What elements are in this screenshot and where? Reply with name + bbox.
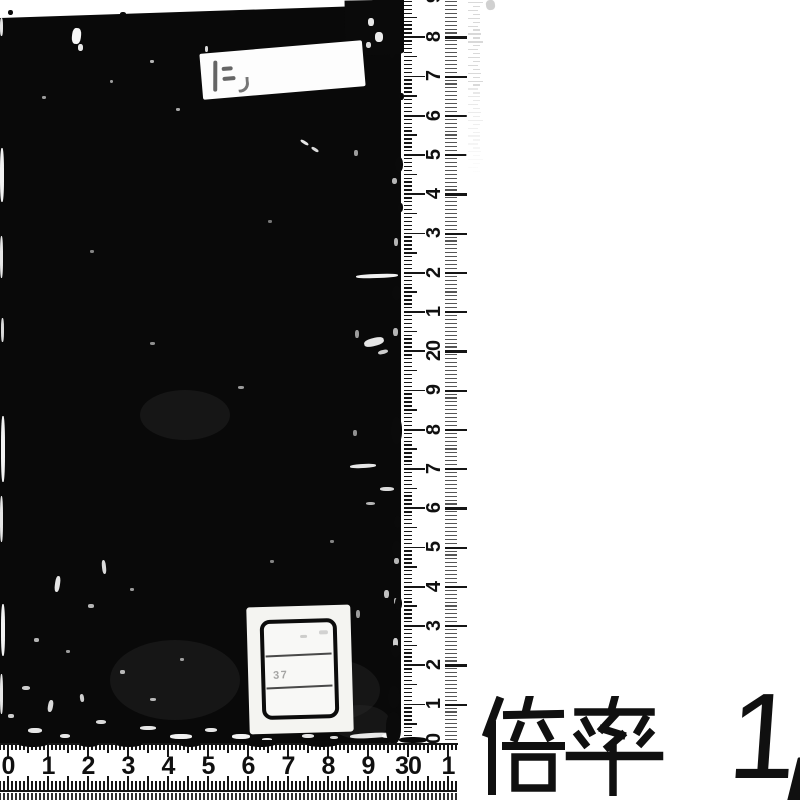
- hruler-number: 30: [391, 754, 425, 778]
- vruler-left-tick: [404, 248, 412, 249]
- wear-mark: [268, 220, 272, 223]
- vruler-number: 9: [421, 0, 447, 11]
- hruler-bottom-tick: [143, 781, 145, 790]
- top-edge-notch: [145, 8, 158, 12]
- hruler-bottom-tick: [411, 781, 413, 790]
- vruler-left-tick: [404, 354, 412, 355]
- vruler-left-tick: [404, 527, 417, 528]
- scan-viewport: 37 9876543212098765432110 0123456789301: [0, 0, 800, 800]
- hruler-bottom-tick: [55, 781, 57, 790]
- hruler-top-tick: [387, 745, 389, 753]
- wear-mark: [0, 496, 3, 542]
- wear-mark: [88, 604, 94, 608]
- vruler-left-tick: [404, 523, 412, 524]
- vruler-left-tick: [404, 692, 412, 693]
- hruler-subrow-tick: [259, 793, 261, 800]
- hruler-top-tick: [355, 745, 357, 750]
- hruler-subrow-tick: [335, 793, 337, 800]
- hruler-top-tick: [291, 745, 293, 750]
- vruler-right-dash: [445, 335, 457, 336]
- hruler-subrow-tick: [71, 793, 73, 800]
- hruler-bottom-tick: [147, 776, 149, 790]
- vruler-left-tick: [404, 688, 412, 689]
- vruler-left-tick: [404, 60, 412, 61]
- hruler-number: 9: [351, 754, 385, 778]
- book-edge-bump: [180, 742, 200, 747]
- wear-mark: [238, 386, 244, 389]
- top-edge-notch: [26, 8, 42, 13]
- vruler-number: 4: [421, 574, 447, 600]
- hruler-bottom-tick: [303, 781, 305, 790]
- hruler-bottom-tick: [115, 781, 117, 790]
- vruler-right-dash: [445, 445, 457, 446]
- hruler-subrow-tick: [11, 793, 13, 800]
- vruler-left-tick: [404, 68, 412, 69]
- hruler-bottom-tick: [399, 781, 401, 790]
- wear-mark: [130, 588, 134, 591]
- vruler-left-tick: [404, 256, 412, 257]
- hruler-bottom-tick: [275, 781, 277, 790]
- hruler-bottom-tick: [347, 776, 349, 790]
- hruler-top-tick: [411, 745, 413, 750]
- hruler-subrow-tick: [435, 793, 437, 800]
- vruler-right-dash: [445, 570, 457, 571]
- wear-mark: [240, 86, 243, 89]
- vruler-right-dash: [445, 609, 457, 610]
- hruler-subrow-tick: [103, 793, 105, 800]
- vruler-right-dash: [445, 727, 457, 728]
- hruler-top-tick: [51, 745, 53, 750]
- wear-mark: [205, 46, 208, 52]
- hruler-top-tick: [343, 745, 345, 750]
- vruler-left-tick: [404, 95, 417, 96]
- wear-mark: [384, 590, 389, 598]
- hruler-bottom-tick: [403, 781, 405, 790]
- vruler-left-tick: [404, 566, 417, 567]
- wear-mark: [28, 728, 42, 733]
- hruler-bottom-tick: [267, 776, 269, 790]
- vruler-right-dash: [445, 413, 457, 414]
- hruler-bottom-tick: [75, 781, 77, 790]
- wear-mark: [1, 604, 5, 656]
- hruler-top-tick: [199, 745, 201, 750]
- hruler-subrow-tick: [427, 793, 429, 800]
- hruler-subrow-tick: [303, 793, 305, 800]
- vruler-left-tick: [404, 162, 412, 163]
- hruler-subrow-tick: [135, 793, 137, 800]
- hruler-subrow-tick: [191, 793, 193, 800]
- hruler-subrow-tick: [115, 793, 117, 800]
- vruler-right-dash: [445, 664, 467, 666]
- hruler-top-tick: [359, 745, 361, 750]
- hruler-top-tick: [223, 745, 225, 750]
- hruler-bottom-tick: [339, 781, 341, 790]
- hruler-bottom-tick: [179, 781, 181, 790]
- vruler-number: 6: [421, 103, 447, 129]
- vruler-left-tick: [404, 421, 412, 422]
- hruler-bottom-tick: [59, 781, 61, 790]
- vruler-number: 7: [421, 456, 447, 482]
- hruler-subrow-tick: [235, 793, 237, 800]
- hruler-bottom-tick: [23, 781, 25, 790]
- vruler-left-tick: [404, 72, 412, 73]
- vruler-left-tick: [404, 221, 412, 222]
- hruler-subrow-tick: [35, 793, 37, 800]
- hruler-subrow-tick: [107, 793, 109, 800]
- wear-mark: [60, 734, 70, 738]
- hruler-top-tick: [219, 745, 221, 750]
- hruler-top-tick: [431, 745, 433, 750]
- hruler-bottom-tick: [351, 781, 353, 790]
- vruler-left-tick: [404, 366, 412, 367]
- vruler-right-dash: [445, 217, 457, 218]
- handwriting-stroke: [237, 77, 249, 93]
- hruler-subrow-tick: [123, 793, 125, 800]
- faint-mark: [319, 630, 328, 634]
- hruler-subrow-tick: [131, 793, 133, 800]
- edge-debris: [392, 286, 401, 300]
- hruler-bottom-tick: [203, 781, 205, 790]
- vruler-right-dash: [445, 170, 457, 171]
- hruler-subrow-tick: [179, 793, 181, 800]
- vruler-right-dash: [445, 21, 457, 22]
- book-edge-bump: [18, 740, 48, 747]
- hruler-subrow-tick: [91, 793, 93, 800]
- hruler-bottom-tick: [67, 776, 69, 790]
- vruler-left-tick: [404, 492, 412, 493]
- hruler-subrow-tick: [51, 793, 53, 800]
- wear-mark: [150, 60, 154, 63]
- wear-mark: [90, 250, 94, 253]
- edge-debris: [120, 12, 126, 16]
- vruler-number: 3: [421, 220, 447, 246]
- vruler-left-tick: [404, 295, 412, 296]
- wear-mark: [366, 42, 371, 48]
- hruler-top-tick: [115, 745, 117, 750]
- hruler-subrow-tick: [267, 793, 269, 800]
- vruler-number: 1: [421, 299, 447, 325]
- vruler-right-dash: [445, 645, 457, 646]
- vruler-left-tick: [404, 382, 412, 383]
- vruler-right-dash: [445, 288, 457, 289]
- vruler-left-tick: [404, 17, 417, 18]
- wear-mark: [0, 148, 4, 202]
- magnification-slash-partial: [786, 757, 800, 800]
- hruler-subrow-tick: [87, 793, 89, 800]
- vruler-left-tick: [404, 707, 412, 708]
- hruler-bottom-tick: [123, 781, 125, 790]
- hruler-bottom-tick: [227, 776, 229, 790]
- hruler-subrow-tick: [111, 793, 113, 800]
- hruler-subrow-tick: [407, 793, 409, 800]
- vruler-left-tick: [404, 284, 412, 285]
- hruler-top-tick: [143, 745, 145, 750]
- hruler-subrow-tick: [167, 793, 169, 800]
- hruler-subrow-tick: [127, 793, 129, 800]
- hruler-bottom-tick: [395, 781, 397, 790]
- hruler-subrow-tick: [147, 793, 149, 800]
- hruler-top-tick: [63, 745, 65, 750]
- hruler-subrow-tick: [331, 793, 333, 800]
- vruler-left-tick: [404, 315, 412, 316]
- hruler-subrow-tick: [231, 793, 233, 800]
- edge-debris: [388, 686, 400, 708]
- wear-mark: [78, 44, 83, 51]
- vruler-left-tick: [404, 362, 412, 363]
- hruler-bottom-tick: [119, 781, 121, 790]
- hruler-subrow-tick: [59, 793, 61, 800]
- worn-patch: [110, 640, 240, 720]
- hruler-subrow-tick: [379, 793, 381, 800]
- hruler-subrow-tick: [187, 793, 189, 800]
- hruler-subrow-tick: [443, 793, 445, 800]
- hruler-subrow-tick: [423, 793, 425, 800]
- hruler-top-tick: [243, 745, 245, 750]
- top-edge-notch: [76, 7, 94, 11]
- vruler-right-dash: [445, 507, 467, 509]
- vruler-number: 9: [421, 377, 447, 403]
- hruler-subrow-tick: [283, 793, 285, 800]
- hruler-top-tick: [215, 745, 217, 750]
- hruler-top-tick: [283, 745, 285, 750]
- hruler-top-tick: [75, 745, 77, 750]
- hruler-subrow-tick: [451, 793, 453, 800]
- vruler-right-dash: [445, 131, 457, 132]
- vruler-right-dash: [445, 523, 457, 524]
- wear-mark: [176, 108, 180, 111]
- vruler-left-tick: [404, 119, 412, 120]
- hruler-bottom-tick: [175, 781, 177, 790]
- hruler-bottom-tick: [435, 781, 437, 790]
- vruler-left-tick: [404, 299, 412, 300]
- vruler-left-tick: [404, 582, 412, 583]
- hruler-bottom-tick: [3, 781, 5, 790]
- hruler-subrow-tick: [327, 793, 329, 800]
- hruler-bottom-tick: [323, 781, 325, 790]
- wear-mark: [394, 558, 399, 564]
- vruler-right-dash: [445, 91, 457, 92]
- vruler-left-tick: [404, 28, 412, 29]
- wear-mark: [66, 650, 70, 653]
- hruler-subrow-tick: [315, 793, 317, 800]
- edge-debris: [391, 417, 402, 444]
- hruler-top-tick: [371, 745, 373, 750]
- vruler-right-dash: [445, 193, 467, 195]
- call-number-frame: 37: [260, 618, 340, 720]
- hruler-subrow-tick: [143, 793, 145, 800]
- wear-mark: [353, 430, 357, 436]
- vruler-right-dash: [445, 291, 457, 292]
- vruler-left-tick: [404, 719, 412, 720]
- vruler-left-tick: [404, 731, 412, 732]
- vruler-left-tick: [404, 601, 412, 602]
- hruler-top-tick: [279, 745, 281, 750]
- hruler-subrow-tick: [391, 793, 393, 800]
- vruler-right-dash: [445, 178, 457, 179]
- vruler-left-tick: [404, 170, 412, 171]
- hruler-bottom-tick: [423, 781, 425, 790]
- vruler-right-dash: [445, 429, 467, 431]
- hruler-bottom-tick: [63, 781, 65, 790]
- vruler-left-tick: [404, 425, 412, 426]
- vruler-right-dash: [445, 248, 457, 249]
- hruler-subrow-tick: [355, 793, 357, 800]
- hruler-top-tick: [391, 745, 393, 750]
- hruler-top-tick: [227, 745, 229, 753]
- handwriting-stroke: [222, 66, 233, 70]
- hruler-subrow-tick: [151, 793, 153, 800]
- vruler-left-tick: [404, 621, 412, 622]
- hruler-bottom-tick: [35, 781, 37, 790]
- hruler-subrow-tick: [27, 793, 29, 800]
- hruler-bottom-tick: [223, 781, 225, 790]
- vruler-left-tick: [404, 633, 412, 634]
- kanji-bairitsu-text: [482, 696, 667, 796]
- hruler-subrow-tick: [415, 793, 417, 800]
- hruler-top-tick: [147, 745, 149, 753]
- vruler-left-tick: [404, 433, 412, 434]
- vruler-right-dash: [445, 641, 457, 642]
- vruler-left-tick: [404, 40, 412, 41]
- wear-mark: [375, 32, 383, 42]
- hruler-subrow-tick: [163, 793, 165, 800]
- wear-mark: [270, 560, 274, 563]
- frame-divider: [266, 685, 332, 690]
- hruler-top-tick: [383, 745, 385, 750]
- vruler-left-tick: [404, 515, 412, 516]
- wear-mark: [368, 18, 374, 26]
- hruler-subrow-tick: [439, 793, 441, 800]
- top-edge-notch: [55, 6, 66, 13]
- hruler-subrow-tick: [419, 793, 421, 800]
- hruler-subrow-tick: [63, 793, 65, 800]
- hruler-subrow-tick: [199, 793, 201, 800]
- wear-mark: [392, 178, 397, 184]
- hruler-subrow-tick: [119, 793, 121, 800]
- hruler-subrow-tick: [215, 793, 217, 800]
- vruler-left-tick: [404, 495, 412, 496]
- hruler-subrow-tick: [295, 793, 297, 800]
- vruler-left-tick: [404, 405, 412, 406]
- vruler-left-tick: [404, 723, 417, 724]
- hruler-bottom-tick: [363, 781, 365, 790]
- edge-debris: [391, 645, 400, 657]
- vruler-left-tick: [404, 142, 412, 143]
- vruler-left-tick: [404, 519, 412, 520]
- hruler-subrow-tick: [371, 793, 373, 800]
- hruler-bottom-tick: [375, 781, 377, 790]
- vruler-left-tick: [404, 111, 412, 112]
- vruler-left-tick: [404, 598, 412, 599]
- ghost-fade: [466, 0, 514, 180]
- vruler-right-dash: [445, 13, 457, 14]
- vruler-right-dash: [445, 370, 457, 371]
- vruler-left-tick: [404, 127, 412, 128]
- hruler-bottom-tick: [291, 781, 293, 790]
- vruler-number: 8: [421, 417, 447, 443]
- vruler-left-tick: [404, 87, 412, 88]
- hruler-bottom-tick: [51, 781, 53, 790]
- hruler-number: 6: [231, 754, 265, 778]
- vruler-left-tick: [404, 684, 417, 685]
- hruler-top-tick: [455, 745, 457, 750]
- vruler-number: 3: [421, 613, 447, 639]
- vruler-left-tick: [404, 185, 412, 186]
- vruler-left-tick: [404, 64, 412, 65]
- vruler-left-tick: [404, 268, 412, 269]
- hruler-subrow-tick: [23, 793, 25, 800]
- vruler-left-tick: [404, 444, 412, 445]
- hruler-bottom-tick: [359, 781, 361, 790]
- hruler-top-tick: [303, 745, 305, 750]
- vruler-left-tick: [404, 201, 412, 202]
- hruler-subrow-tick: [431, 793, 433, 800]
- vruler-number: 6: [421, 495, 447, 521]
- top-edge-notch: [118, 6, 127, 10]
- hruler-bottom-tick: [195, 781, 197, 790]
- hruler-subrow-tick: [287, 793, 289, 800]
- book-edge-bump: [306, 741, 338, 747]
- faint-mark: [300, 635, 307, 638]
- vruler-right-dash: [445, 115, 467, 117]
- hruler-subrow-tick: [383, 793, 385, 800]
- hruler-bottom-tick: [271, 781, 273, 790]
- hruler-subrow-tick: [343, 793, 345, 800]
- vruler-right-dash: [445, 547, 467, 549]
- hruler-bottom-tick: [315, 781, 317, 790]
- hruler-subrow-tick: [207, 793, 209, 800]
- hruler-bottom-tick: [431, 781, 433, 790]
- hruler-number: 1: [31, 754, 65, 778]
- vruler-right-dash: [445, 586, 467, 588]
- hruler-subrow-tick: [367, 793, 369, 800]
- hruler-bottom-tick: [131, 781, 133, 790]
- vruler-right-dash: [445, 56, 457, 57]
- vruler-left-tick: [404, 209, 412, 210]
- vruler-right-dash: [445, 36, 467, 38]
- vruler-right-dash: [445, 76, 467, 78]
- hruler-subrow-tick: [95, 793, 97, 800]
- vruler-right-dash: [445, 390, 467, 392]
- vruler-left-tick: [404, 484, 412, 485]
- vruler-left-tick: [404, 605, 417, 606]
- vruler-left-tick: [404, 197, 412, 198]
- hruler-subrow-tick: [251, 793, 253, 800]
- hruler-top-tick: [375, 745, 377, 750]
- hruler-top-tick: [171, 745, 173, 750]
- hruler-bottom-tick: [11, 781, 13, 790]
- vruler-right-dash: [445, 256, 457, 257]
- vruler-left-tick: [404, 409, 417, 410]
- hruler-top-tick: [395, 745, 397, 750]
- hruler-subrow-tick: [263, 793, 265, 800]
- hruler-top-tick: [451, 745, 453, 750]
- hruler-subrow-tick: [319, 793, 321, 800]
- hruler-bottom-tick: [83, 781, 85, 790]
- hruler-number: 3: [111, 754, 145, 778]
- vruler-right-dash: [445, 213, 457, 214]
- vruler-left-tick: [404, 393, 412, 394]
- vruler-left-tick: [404, 91, 412, 92]
- hruler-subrow-tick: [31, 793, 33, 800]
- vruler-left-tick: [404, 550, 412, 551]
- hruler-top-tick: [351, 745, 353, 750]
- wear-mark: [110, 80, 113, 83]
- hruler-bottom-tick: [243, 781, 245, 790]
- hruler-subrow-tick: [47, 793, 49, 800]
- vruler-left-tick: [404, 205, 412, 206]
- wear-mark: [140, 726, 156, 730]
